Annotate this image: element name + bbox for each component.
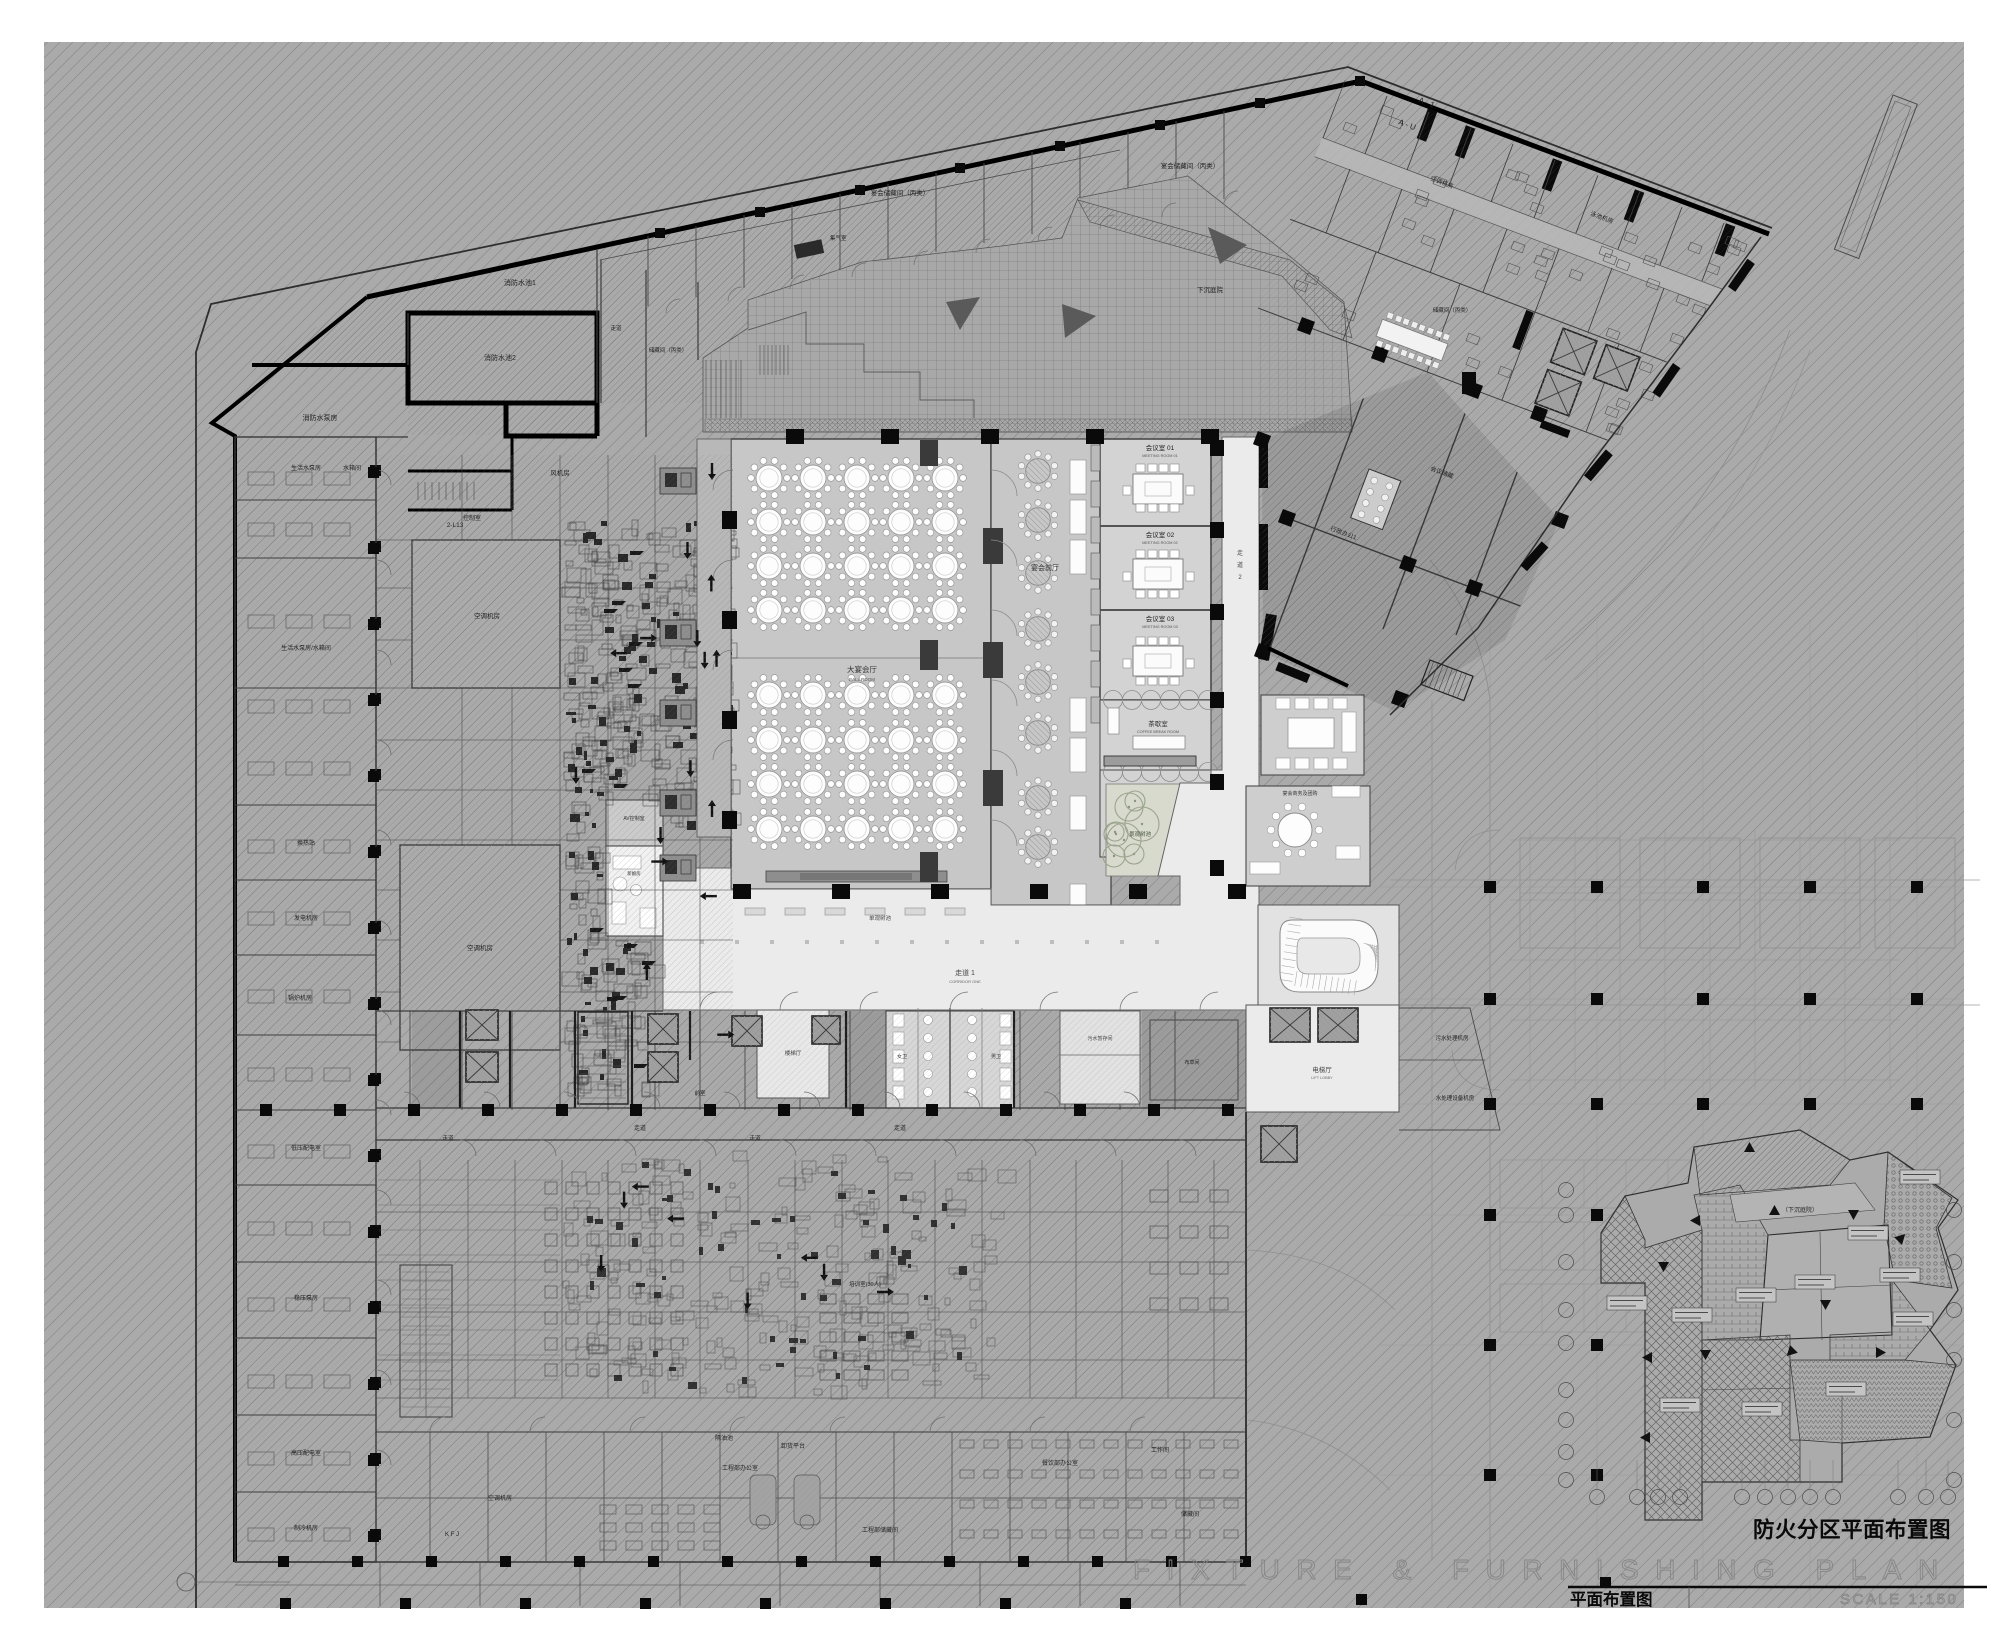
svg-text:（下沉庭院）: （下沉庭院） <box>1782 1206 1818 1214</box>
svg-text:宴会前厅: 宴会前厅 <box>1031 563 1059 572</box>
svg-text:MEETING ROOM 02: MEETING ROOM 02 <box>1142 541 1177 545</box>
svg-text:污水处理机房: 污水处理机房 <box>1435 1034 1469 1042</box>
svg-text:消防水泵房: 消防水泵房 <box>303 413 338 422</box>
svg-text:电梯厅: 电梯厅 <box>1312 1065 1332 1074</box>
svg-text:走道: 走道 <box>894 1124 906 1132</box>
svg-text:走道: 走道 <box>634 1124 646 1132</box>
svg-text:走: 走 <box>1237 549 1243 557</box>
svg-text:集气室: 集气室 <box>830 234 847 242</box>
svg-text:防火分区平面布置图: 防火分区平面布置图 <box>1753 1517 1951 1542</box>
svg-text:茶歇室: 茶歇室 <box>1148 719 1168 728</box>
svg-text:储藏间（丙类）: 储藏间（丙类） <box>1433 306 1472 314</box>
svg-text:宴会储藏间（丙类）: 宴会储藏间（丙类） <box>1161 161 1220 170</box>
svg-text:会议室 01: 会议室 01 <box>1146 443 1175 452</box>
svg-text:水处理设备机房: 水处理设备机房 <box>1436 1094 1475 1102</box>
svg-text:会议室 02: 会议室 02 <box>1146 530 1175 539</box>
svg-text:走道: 走道 <box>749 1134 761 1142</box>
svg-text:BALL ROOM: BALL ROOM <box>849 677 875 682</box>
svg-text:走道: 走道 <box>442 1134 454 1142</box>
svg-text:CORRIDOR ONE: CORRIDOR ONE <box>949 979 981 984</box>
svg-text:SCALE 1:150: SCALE 1:150 <box>1840 1591 1958 1608</box>
svg-text:道: 道 <box>1237 561 1243 569</box>
svg-text:会议室 03: 会议室 03 <box>1146 614 1175 623</box>
svg-text:COFFEE BREAK ROOM: COFFEE BREAK ROOM <box>1137 730 1179 734</box>
svg-text:走道 1: 走道 1 <box>955 968 975 977</box>
svg-text:MEETING ROOM 01: MEETING ROOM 01 <box>1142 454 1177 458</box>
svg-text:消防水池2: 消防水池2 <box>484 353 516 362</box>
svg-text:LIFT LOBBY: LIFT LOBBY <box>1311 1076 1333 1080</box>
svg-text:消防水池1: 消防水池1 <box>504 278 536 287</box>
svg-text:下沉庭院: 下沉庭院 <box>1197 285 1224 294</box>
svg-text:大宴会厅: 大宴会厅 <box>847 664 877 674</box>
svg-text:宴会商务及团购: 宴会商务及团购 <box>1282 790 1317 797</box>
svg-text:储藏间（丙类）: 储藏间（丙类） <box>649 346 688 354</box>
svg-text:宴会储藏间（丙类）: 宴会储藏间（丙类） <box>871 188 930 197</box>
svg-text:单观树池: 单观树池 <box>869 914 892 922</box>
svg-text:走道: 走道 <box>610 324 622 332</box>
svg-text:平面布置图: 平面布置图 <box>1570 1589 1653 1609</box>
svg-text:FIXTURE & FURNISHING PLAN: FIXTURE & FURNISHING PLAN <box>1133 1554 1955 1585</box>
svg-text:景观树池: 景观树池 <box>1129 830 1152 838</box>
svg-text:MEETING ROOM 03: MEETING ROOM 03 <box>1142 625 1177 629</box>
